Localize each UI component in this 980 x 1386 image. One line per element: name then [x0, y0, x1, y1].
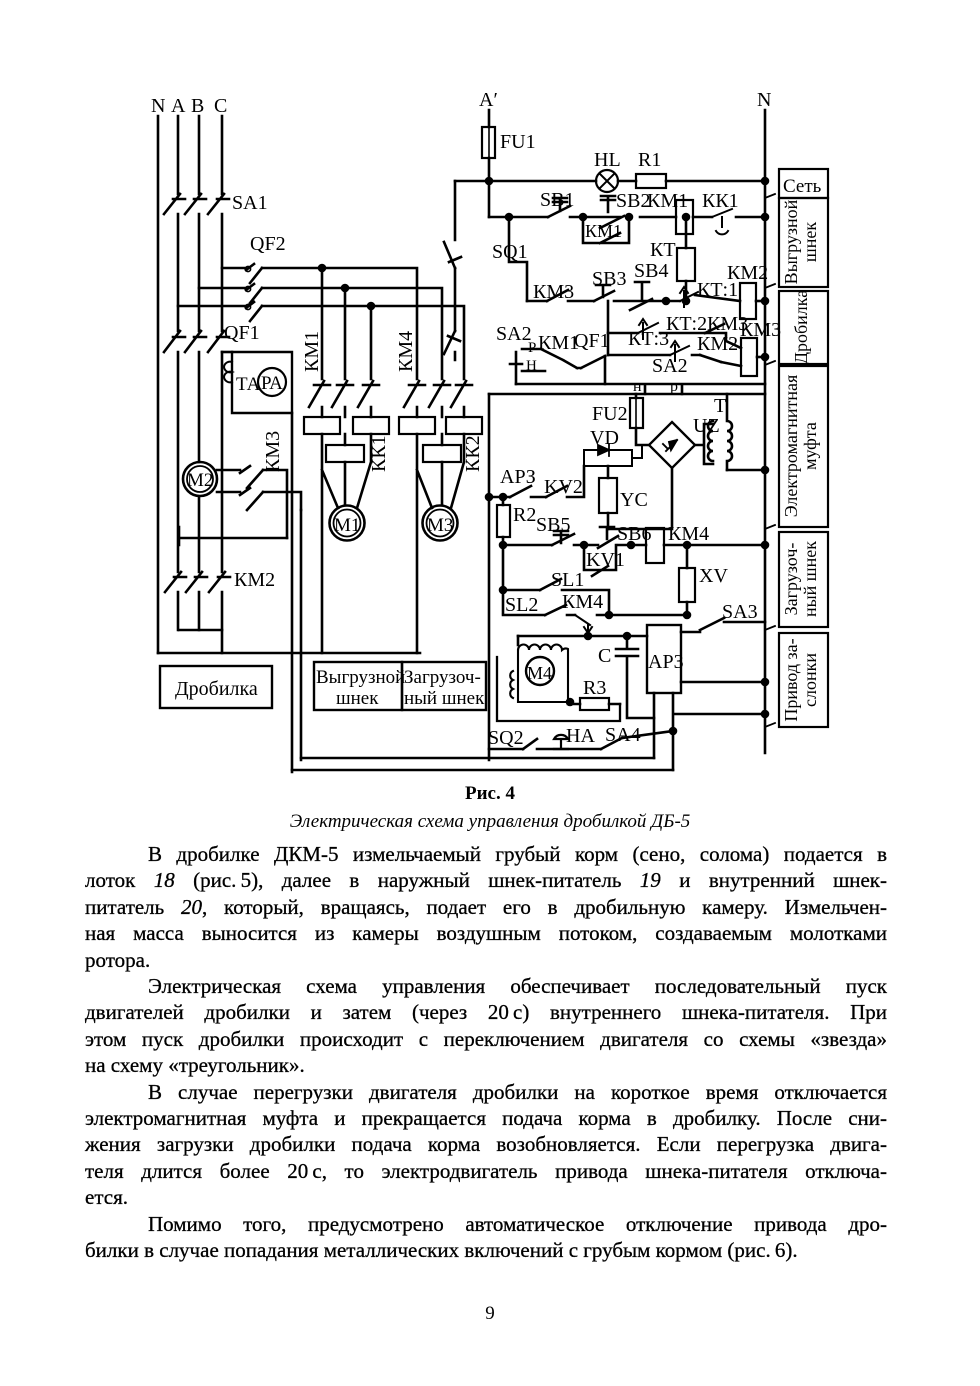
svg-text:R2: R2 [513, 504, 536, 526]
svg-text:КМ2: КМ2 [697, 333, 738, 355]
svg-text:АР3: АР3 [648, 651, 684, 673]
svg-text:КМ2: КМ2 [234, 569, 275, 591]
svg-text:R1: R1 [638, 149, 661, 171]
svg-text:Дробилка: Дробилка [791, 290, 811, 365]
svg-text:QF2: QF2 [250, 233, 286, 255]
svg-text:А′: А′ [479, 89, 498, 111]
svg-text:YC: YC [620, 489, 648, 511]
svg-text:ТА: ТА [236, 374, 261, 395]
svg-text:М4: М4 [527, 663, 552, 683]
svg-text:QF1: QF1 [574, 330, 610, 352]
svg-text:В: В [191, 95, 204, 117]
svg-text:КМ4: КМ4 [395, 331, 417, 372]
svg-text:SA1: SA1 [232, 192, 268, 214]
svg-text:р: р [670, 378, 678, 395]
svg-text:КМ3: КМ3 [262, 431, 284, 472]
svg-text:КМ1: КМ1 [301, 331, 323, 372]
svg-text:КМ4: КМ4 [562, 591, 603, 613]
svg-text:Загрузоч-: Загрузоч- [404, 667, 481, 688]
svg-text:KV1: KV1 [586, 549, 625, 571]
svg-text:ный шнек: ный шнек [404, 688, 485, 709]
svg-text:КМ3: КМ3 [533, 281, 574, 303]
svg-text:Т: Т [714, 395, 726, 417]
svg-text:КМ1: КМ1 [585, 221, 622, 241]
svg-text:С: С [214, 95, 227, 117]
svg-text:Р: Р [528, 340, 536, 356]
svg-text:КМ1: КМ1 [538, 332, 579, 354]
svg-text:SB1: SB1 [540, 189, 574, 211]
svg-text:КМ1: КМ1 [647, 190, 688, 212]
svg-text:РА: РА [261, 373, 283, 394]
svg-text:SB4: SB4 [634, 260, 668, 282]
svg-text:Загрузоч-: Загрузоч- [781, 543, 801, 616]
svg-text:слонки: слонки [800, 653, 820, 707]
svg-text:FU2: FU2 [592, 403, 628, 425]
svg-text:Привод за-: Привод за- [781, 638, 801, 721]
svg-text:SA4: SA4 [605, 724, 641, 746]
svg-text:КТ:3: КТ:3 [628, 328, 669, 350]
svg-text:Выгрузной: Выгрузной [781, 199, 801, 284]
svg-text:КТ: КТ [650, 239, 676, 261]
svg-text:А: А [171, 95, 186, 117]
svg-text:QF1: QF1 [224, 322, 260, 344]
svg-text:муфта: муфта [800, 422, 820, 470]
svg-text:Сеть: Сеть [783, 176, 822, 197]
svg-text:N: N [151, 95, 165, 117]
svg-text:Электромагнитная: Электромагнитная [781, 375, 801, 518]
svg-text:НА: НА [566, 725, 595, 747]
svg-text:HL: HL [594, 149, 621, 171]
svg-text:КМ2: КМ2 [727, 262, 768, 284]
svg-text:Дробилка: Дробилка [175, 678, 258, 700]
svg-text:С: С [598, 645, 611, 667]
svg-text:XV: XV [699, 565, 728, 587]
svg-text:М2: М2 [187, 470, 213, 491]
svg-text:н: н [633, 378, 642, 395]
svg-text:Выгрузной: Выгрузной [316, 667, 405, 688]
svg-text:SL2: SL2 [505, 594, 538, 616]
svg-text:SL1: SL1 [551, 569, 584, 591]
svg-text:КК1: КК1 [702, 190, 739, 212]
svg-text:SB3: SB3 [592, 268, 626, 290]
svg-text:SQ2: SQ2 [488, 727, 524, 749]
svg-text:М3: М3 [427, 515, 453, 536]
svg-text:КТ:2: КТ:2 [666, 313, 707, 335]
svg-text:М1: М1 [334, 515, 360, 536]
svg-text:UZ: UZ [693, 415, 720, 437]
svg-text:Н: Н [526, 358, 537, 374]
svg-text:SA2: SA2 [496, 323, 532, 345]
svg-text:шнек: шнек [336, 688, 379, 709]
svg-text:SA2: SA2 [652, 355, 688, 377]
svg-text:SB2: SB2 [616, 190, 650, 212]
svg-text:КМ3: КМ3 [740, 319, 781, 341]
svg-text:SB5: SB5 [536, 514, 570, 536]
svg-text:шнек: шнек [800, 222, 820, 262]
svg-text:R3: R3 [583, 677, 606, 699]
svg-text:SA3: SA3 [722, 601, 758, 623]
svg-text:АРЗ: АРЗ [500, 466, 536, 488]
svg-text:VD: VD [590, 427, 619, 449]
svg-text:ный шнек: ный шнек [800, 541, 820, 617]
svg-text:FU1: FU1 [500, 131, 536, 153]
svg-text:KV2: KV2 [544, 476, 583, 498]
svg-text:N: N [757, 89, 771, 111]
